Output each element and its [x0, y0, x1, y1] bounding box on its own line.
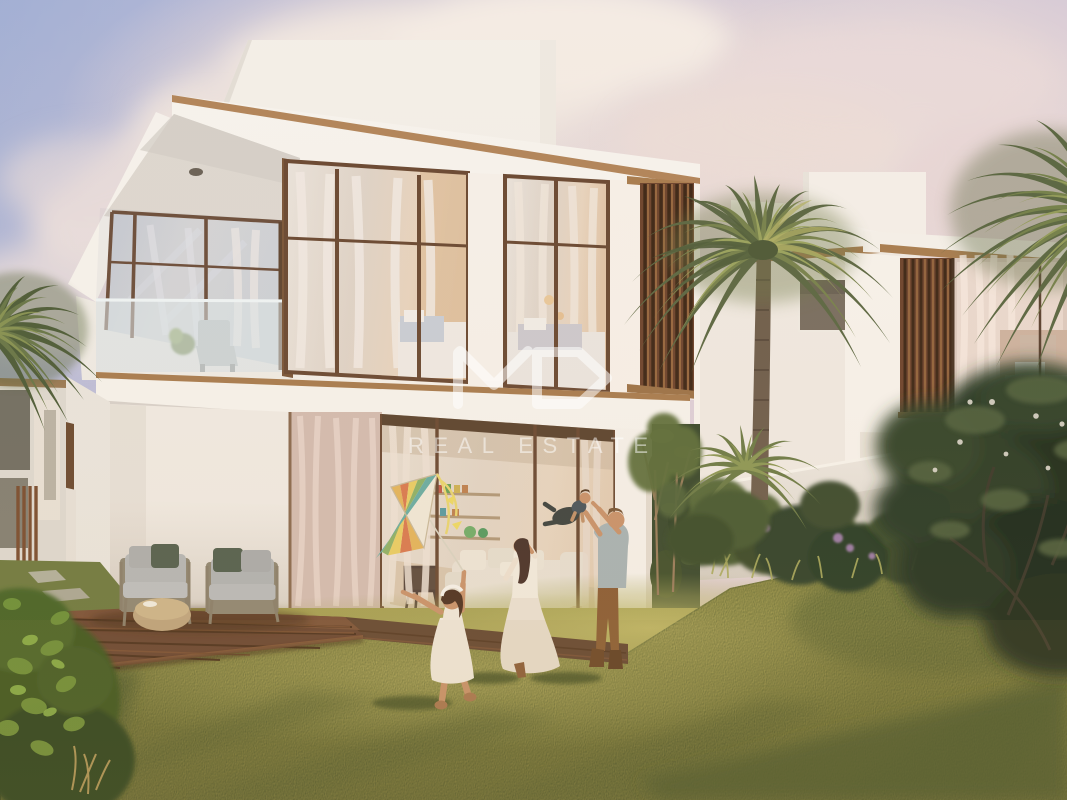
svg-text:REAL ESTATE: REAL ESTATE: [408, 433, 658, 458]
